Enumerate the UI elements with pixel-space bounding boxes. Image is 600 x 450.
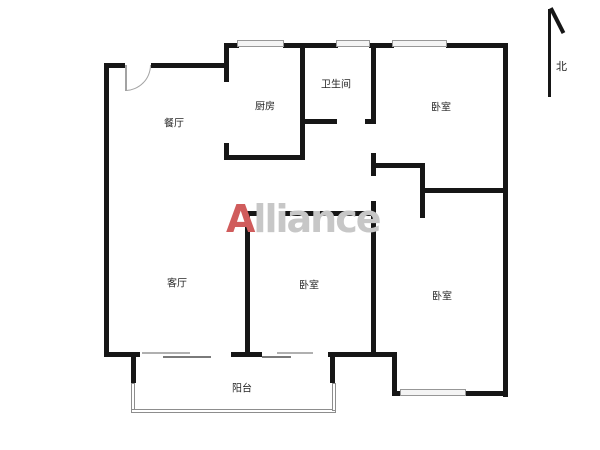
window (237, 40, 284, 47)
balcony-railing (131, 383, 135, 411)
north-label: 北 (556, 58, 567, 74)
window (400, 389, 466, 396)
wall-segment (371, 43, 376, 123)
wall-segment (446, 43, 508, 48)
watermark-letter-a: A (226, 197, 253, 241)
window (336, 40, 370, 47)
balcony-railing (131, 409, 336, 413)
wall-segment (231, 352, 262, 357)
wall-segment (224, 155, 305, 160)
room-label-bathroom: 卫生间 (321, 76, 351, 91)
sliding-door-panel (262, 356, 291, 358)
sliding-door-panel (142, 352, 190, 354)
balcony-railing (332, 383, 336, 411)
wall-segment (131, 352, 136, 383)
wall-segment (151, 63, 229, 68)
wall-segment (300, 119, 337, 124)
room-label-living-room: 客厅 (167, 275, 187, 290)
door-swing (125, 65, 151, 91)
room-label-bedroom-middle: 卧室 (299, 277, 319, 292)
wall-segment (104, 63, 109, 357)
room-label-balcony: 阳台 (232, 380, 252, 395)
wall-segment (392, 352, 397, 396)
room-label-bedroom-north: 卧室 (431, 99, 451, 114)
window (392, 40, 447, 47)
wall-segment (420, 188, 508, 193)
wall-segment (283, 43, 338, 48)
wall-segment (371, 163, 425, 168)
wall-segment (330, 352, 335, 383)
north-arrow-staff (548, 9, 551, 97)
sliding-door-panel (163, 356, 211, 358)
room-label-bedroom-south: 卧室 (432, 288, 452, 303)
wall-segment (465, 391, 508, 396)
room-label-kitchen: 厨房 (255, 98, 275, 113)
watermark-rest: lliance (253, 197, 379, 241)
wall-segment (224, 43, 229, 82)
watermark: Alliance (226, 200, 380, 238)
wall-segment (328, 352, 397, 357)
wall-segment (300, 43, 305, 160)
room-label-dining-room: 餐厅 (164, 115, 184, 130)
sliding-door-panel (277, 352, 313, 354)
floor-plan: 餐厅厨房卫生间卧室客厅卧室卧室阳台 Alliance 北 (0, 0, 600, 450)
wall-segment (503, 43, 508, 397)
